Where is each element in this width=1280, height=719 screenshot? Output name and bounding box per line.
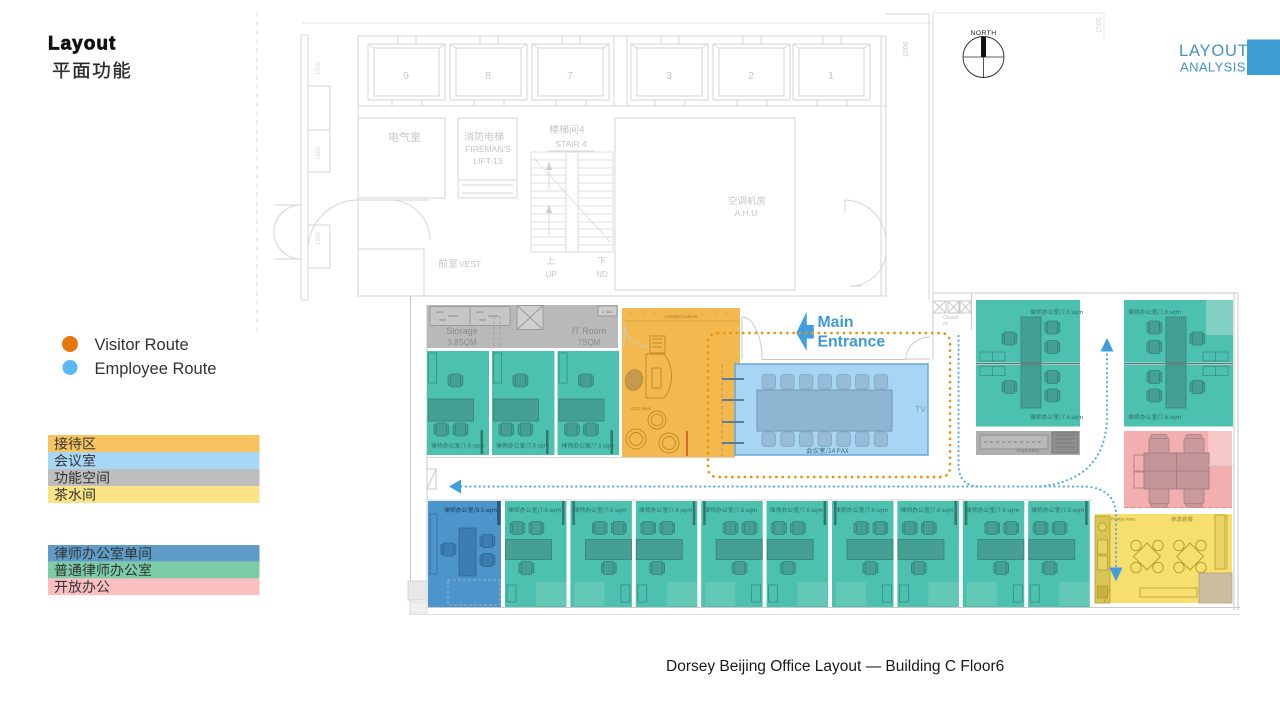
svg-text:Dorsey Beijing Office Layout —: Dorsey Beijing Office Layout — Building … xyxy=(666,658,1004,675)
svg-text:NORTH: NORTH xyxy=(970,30,996,37)
svg-text:TV: TV xyxy=(915,404,926,414)
svg-text:IT Room: IT Room xyxy=(572,326,606,336)
svg-text:1500: 1500 xyxy=(1096,17,1103,33)
svg-text:7SQM: 7SQM xyxy=(578,338,601,347)
svg-text:Main: Main xyxy=(818,314,854,331)
svg-text:9: 9 xyxy=(403,70,409,82)
svg-text:ANALYSIS: ANALYSIS xyxy=(1180,60,1246,75)
svg-text:7: 7 xyxy=(567,70,573,82)
svg-text:LAYOUT: LAYOUT xyxy=(1179,42,1249,60)
svg-text:Employee Route: Employee Route xyxy=(95,360,217,378)
svg-text:1: 1 xyxy=(828,70,834,82)
svg-text:Entrance: Entrance xyxy=(818,334,886,351)
svg-text:3.8SQM Cabinet: 3.8SQM Cabinet xyxy=(664,314,698,319)
svg-text:Storage: Storage xyxy=(446,326,478,336)
svg-text:ND: ND xyxy=(596,270,608,279)
svg-text:STAIR 4: STAIR 4 xyxy=(555,139,587,149)
svg-text:1500: 1500 xyxy=(903,41,910,57)
svg-text:LIFT-13: LIFT-13 xyxy=(473,156,503,166)
svg-text:UP: UP xyxy=(545,270,556,279)
svg-text:2: 2 xyxy=(748,70,754,82)
svg-text:3: 3 xyxy=(666,70,672,82)
svg-text:1500: 1500 xyxy=(316,61,322,75)
svg-text:3.8SQM: 3.8SQM xyxy=(447,338,477,347)
svg-text:8: 8 xyxy=(485,70,491,82)
svg-text:C SAC: C SAC xyxy=(602,310,614,314)
svg-text:1500: 1500 xyxy=(316,231,322,245)
svg-text:A.H.U: A.H.U xyxy=(735,208,758,218)
svg-text:Pantry Area: Pantry Area xyxy=(1111,517,1135,522)
svg-text:FIREMAN'S: FIREMAN'S xyxy=(465,144,511,154)
svg-text:VEST: VEST xyxy=(459,259,481,269)
svg-text:Layout: Layout xyxy=(48,34,116,55)
svg-text:Print Area: Print Area xyxy=(1017,449,1039,455)
svg-text:m: m xyxy=(943,321,948,327)
svg-text:1500: 1500 xyxy=(316,146,322,160)
svg-text:CICI desk: CICI desk xyxy=(631,406,652,411)
svg-text:Visitor Route: Visitor Route xyxy=(95,336,189,354)
